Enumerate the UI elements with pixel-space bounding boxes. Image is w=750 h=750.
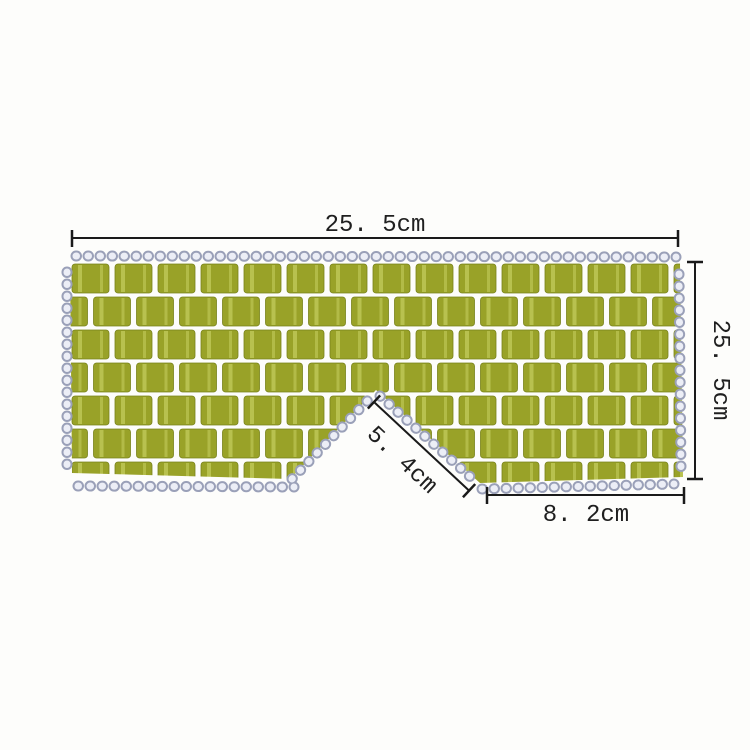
dimension-right-label: 25. 5cm	[706, 320, 733, 421]
jade-eye-mask-diagram: 25. 5cm 25. 5cm 5. 4cm 8. 2cm	[0, 0, 750, 750]
dimension-top-label: 25. 5cm	[325, 212, 426, 239]
dimension-bottom-label: 8. 2cm	[543, 502, 629, 529]
product-image: 25. 5cm 25. 5cm 5. 4cm 8. 2cm	[0, 0, 750, 750]
